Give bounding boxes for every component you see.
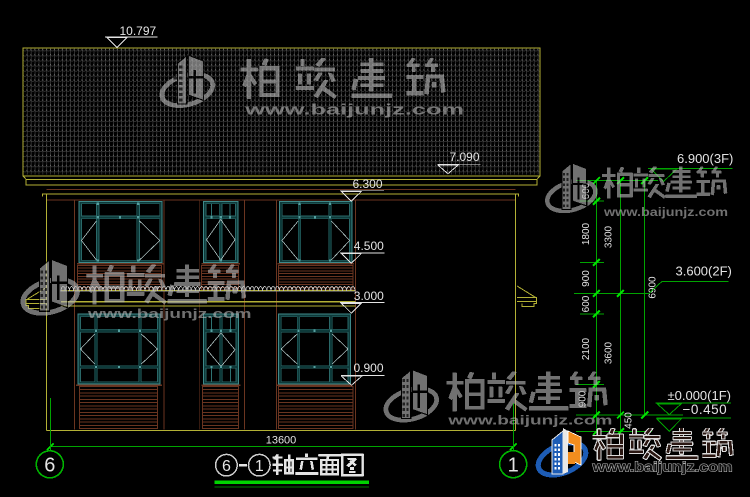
svg-text:1: 1 xyxy=(255,458,264,475)
svg-text:±0.000(1F): ±0.000(1F) xyxy=(668,388,732,403)
svg-text:www.baijunjz.com: www.baijunjz.com xyxy=(447,414,613,428)
svg-text:10.797: 10.797 xyxy=(120,24,157,38)
svg-text:6.900(3F): 6.900(3F) xyxy=(677,151,733,166)
svg-text:3.000: 3.000 xyxy=(354,289,384,303)
svg-text:www.baijunjz.com: www.baijunjz.com xyxy=(591,460,732,475)
svg-text:1800: 1800 xyxy=(581,222,592,245)
svg-text:2100: 2100 xyxy=(581,337,592,360)
svg-text:900: 900 xyxy=(581,270,592,287)
svg-text:600: 600 xyxy=(581,295,592,312)
svg-text:3.600(2F): 3.600(2F) xyxy=(676,264,732,279)
svg-text:13600: 13600 xyxy=(266,435,297,447)
svg-text:www.baijunjz.com: www.baijunjz.com xyxy=(244,102,464,119)
svg-text:4.500: 4.500 xyxy=(354,239,384,253)
svg-text:3600: 3600 xyxy=(604,341,615,364)
svg-text:www.baijunjz.com: www.baijunjz.com xyxy=(86,307,251,321)
svg-text:7.090: 7.090 xyxy=(450,150,480,164)
svg-text:6.300: 6.300 xyxy=(353,177,383,191)
svg-text:3300: 3300 xyxy=(604,225,615,248)
svg-text:1: 1 xyxy=(508,454,519,476)
svg-text:0.900: 0.900 xyxy=(354,361,384,375)
svg-text:450: 450 xyxy=(624,412,635,429)
svg-text:6: 6 xyxy=(44,455,55,477)
svg-text:6: 6 xyxy=(222,458,231,475)
svg-text:−0.450: −0.450 xyxy=(683,402,728,417)
svg-text:www.baijunjz.com: www.baijunjz.com xyxy=(603,207,728,219)
svg-text:6900: 6900 xyxy=(648,276,659,299)
